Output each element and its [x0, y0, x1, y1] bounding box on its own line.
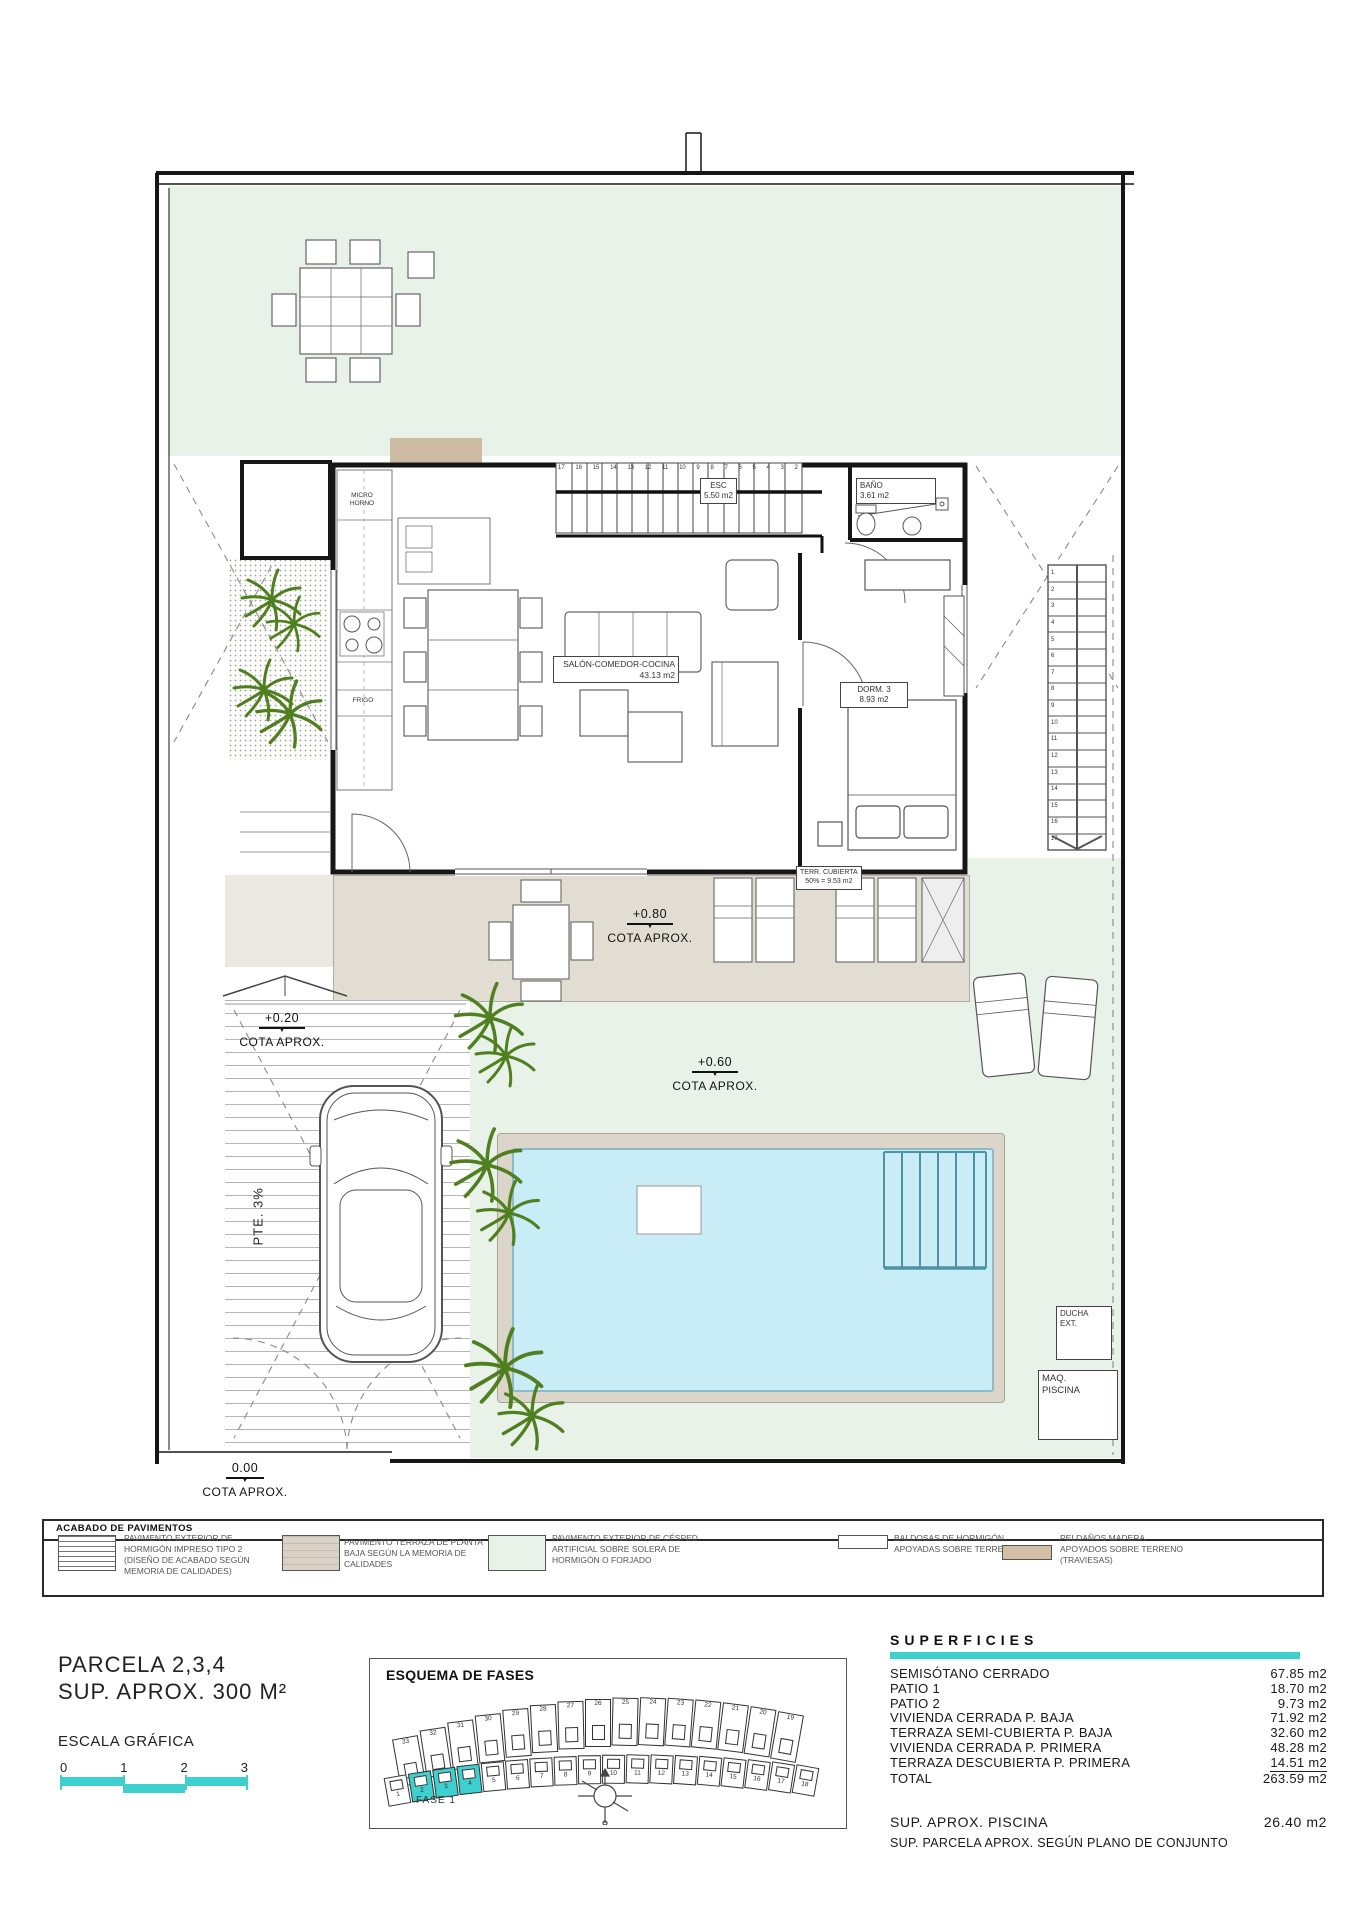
- superficies-row: VIVIENDA CERRADA P. PRIMERA48.28 m2: [890, 1741, 1327, 1756]
- row-value: 48.28 m2: [1270, 1741, 1327, 1756]
- micro-line2: HORNO: [336, 500, 388, 508]
- north-compass-icon: [570, 1767, 640, 1825]
- scale-tick-3: 3: [241, 1760, 248, 1775]
- tread-number-5: 5: [1051, 637, 1054, 643]
- cota-arrow-icon: ▼: [660, 1072, 770, 1077]
- parcela-title: PARCELA 2,3,4: [58, 1652, 226, 1678]
- legend-swatch-cesped: [488, 1535, 546, 1571]
- row-value: 67.85 m2: [1270, 1667, 1327, 1682]
- graphic-scale-bar: 0123: [60, 1760, 248, 1797]
- row-label: TERRAZA SEMI-CUBIERTA P. BAJA: [890, 1726, 1113, 1741]
- legend-swatch-terraza: [282, 1535, 340, 1571]
- maq-line1: MAQ.: [1042, 1373, 1114, 1385]
- cota-arrow-icon: ▼: [600, 924, 700, 929]
- esquema-title: ESQUEMA DE FASES: [386, 1667, 534, 1683]
- row-value: 71.92 m2: [1270, 1711, 1327, 1726]
- tread-number-9: 9: [1051, 703, 1054, 709]
- scale-end-tick: [246, 1775, 248, 1790]
- superficies-row: VIVIENDA CERRADA P. BAJA71.92 m2: [890, 1711, 1327, 1726]
- legend-text-peldanos: PELDAÑOS MADERA APOYADOS SOBRE TERRENO (…: [1060, 1533, 1190, 1566]
- tread-number-9: 9: [696, 465, 699, 471]
- plot-23: 23: [664, 1698, 694, 1748]
- maq-piscina-label: MAQ. PISCINA: [1038, 1370, 1118, 1440]
- superficies-block: SUPERFICIES SEMISÓTANO CERRADO67.85 m2 P…: [890, 1632, 1327, 1786]
- fase-label: FASE 1: [416, 1795, 456, 1806]
- tread-number-14: 14: [610, 465, 617, 471]
- car: [310, 1086, 452, 1362]
- superficies-row: TERRAZA SEMI-CUBIERTA P. BAJA32.60 m2: [890, 1726, 1327, 1741]
- row-label: VIVIENDA CERRADA P. PRIMERA: [890, 1741, 1102, 1756]
- legend-text-cesped: PAVIMENTO EXTERIOR DE CÉSPED ARTIFICIAL …: [552, 1533, 717, 1566]
- plot-18: 18: [792, 1764, 820, 1797]
- superficies-row-total: TOTAL263.59 m2: [890, 1772, 1327, 1787]
- tread-number-15: 15: [1051, 803, 1058, 809]
- scale-bar: [60, 1777, 248, 1797]
- piscina-label: SUP. APROX. PISCINA: [890, 1814, 1048, 1830]
- tread-number-11: 11: [662, 465, 668, 471]
- cota-jardin-label: COTA APROX.: [660, 1080, 770, 1093]
- dining-set: [404, 590, 542, 740]
- tread-number-2: 2: [795, 465, 798, 471]
- esc-line1: ESC: [704, 481, 733, 491]
- plot-27: 27: [557, 1701, 584, 1750]
- row-label: TOTAL: [890, 1772, 932, 1787]
- tread-number-5: 5: [752, 465, 755, 471]
- cota-jardin: +0.60 ▼ COTA APROX.: [660, 1056, 770, 1093]
- tread-number-7: 7: [1051, 670, 1054, 676]
- plot-29: 29: [502, 1708, 532, 1758]
- plot-6: 6: [505, 1759, 530, 1790]
- tread-number-16: 16: [575, 465, 582, 471]
- tread-number-15: 15: [593, 465, 600, 471]
- plan-linework: [0, 0, 1357, 1530]
- salon-line2: 43.13 m2: [557, 670, 675, 681]
- legend-swatch-baldosas: [838, 1535, 888, 1549]
- plot-15: 15: [720, 1757, 746, 1788]
- escala-title: ESCALA GRÁFICA: [58, 1733, 194, 1750]
- terrace-furniture: [489, 878, 964, 1001]
- scale-ticks: 0123: [60, 1760, 248, 1775]
- cota-arrow-icon: ▼: [232, 1028, 332, 1033]
- tread-number-4: 4: [1051, 620, 1054, 626]
- plot-24: 24: [638, 1697, 666, 1746]
- cota-acceso-label: COTA APROX.: [232, 1036, 332, 1049]
- cota-calle: 0.00 ▼ COTA APROX.: [190, 1462, 300, 1499]
- plot-16: 16: [744, 1759, 771, 1791]
- esquema-de-fases: ESQUEMA DE FASES 33323130292827262524232…: [369, 1658, 847, 1829]
- tread-number-4: 4: [767, 465, 770, 471]
- row-value: 9.73 m2: [1278, 1697, 1327, 1712]
- superficies-row: TERRAZA DESCUBIERTA P. PRIMERA14.51 m2: [890, 1756, 1327, 1772]
- tread-number-3: 3: [781, 465, 784, 471]
- scale-segment: [185, 1777, 248, 1786]
- parcela-surface: SUP. APROX. 300 M²: [58, 1679, 287, 1705]
- tread-number-10: 10: [1051, 720, 1058, 726]
- legend-text-hormigon: PAVIMENTO EXTERIOR DE HORMIGÓN IMPRESO T…: [124, 1533, 276, 1577]
- terraza-cubierta-label: TERR. CUBIERTA 50% = 9.53 m2: [796, 866, 862, 890]
- tread-number-17: 17: [558, 465, 565, 471]
- tread-number-12: 12: [1051, 753, 1058, 759]
- ducha-line1: DUCHA: [1060, 1309, 1108, 1319]
- garden-loungers: [973, 973, 1098, 1081]
- dorm3-label: DORM. 3 8.93 m2: [840, 682, 908, 708]
- maq-line2: PISCINA: [1042, 1385, 1114, 1397]
- tread-number-2: 2: [1051, 587, 1054, 593]
- pavement-legend: ACABADO DE PAVIMENTOS PAVIMENTO EXTERIOR…: [42, 1519, 1324, 1597]
- legend-swatch-hormigon: [58, 1535, 116, 1571]
- parcela-note: SUP. PARCELA APROX. SEGÚN PLANO DE CONJU…: [890, 1836, 1340, 1850]
- salon-label: SALÓN-COMEDOR-COCINA 43.13 m2: [553, 656, 679, 683]
- terr-line2: 50% = 9.53 m2: [800, 878, 858, 887]
- tread-number-14: 14: [1051, 786, 1058, 792]
- plot-13: 13: [673, 1755, 698, 1786]
- tread-number-6: 6: [1051, 653, 1054, 659]
- scale-tick-0: 0: [60, 1760, 67, 1775]
- tread-number-16: 16: [1051, 819, 1058, 825]
- tread-number-13: 13: [627, 465, 634, 471]
- interior-stair-numbers: 171615141312111098765432: [558, 465, 798, 471]
- plot-3: 3: [432, 1767, 459, 1799]
- row-label: SEMISÓTANO CERRADO: [890, 1667, 1050, 1682]
- legend-text-terraza: PAVIMENTO TERRAZA DE PLANTA BAJA SEGÚN L…: [344, 1537, 494, 1570]
- plot-1: 1: [384, 1774, 412, 1807]
- ducha-line2: EXT.: [1060, 1319, 1108, 1329]
- tread-number-10: 10: [679, 465, 686, 471]
- bano-line2: 3.61 m2: [860, 491, 932, 501]
- scale-segment: [60, 1777, 123, 1786]
- dorm3-line2: 8.93 m2: [844, 695, 904, 705]
- scale-end-tick: [185, 1775, 187, 1790]
- scale-end-tick: [123, 1775, 125, 1790]
- esquema-top-row: 333231302928272625242322212019: [396, 1699, 800, 1747]
- superficies-row: PATIO 118.70 m2: [890, 1682, 1327, 1697]
- superficies-row: PATIO 29.73 m2: [890, 1697, 1327, 1712]
- plot-28: 28: [530, 1704, 558, 1753]
- bano-line1: BAÑO: [860, 481, 932, 491]
- row-value: 14.51 m2: [1270, 1756, 1327, 1772]
- salon-line1: SALÓN-COMEDOR-COCINA: [557, 659, 675, 670]
- micro-line1: MICRO: [336, 492, 388, 500]
- pendiente-label: PTE. 3%: [251, 1166, 266, 1246]
- pergola-gable: [223, 976, 466, 1004]
- pool-skimmer: [637, 1186, 701, 1234]
- scale-end-tick: [60, 1775, 62, 1790]
- tread-number-3: 3: [1051, 603, 1054, 609]
- row-value: 32.60 m2: [1270, 1726, 1327, 1741]
- legend-swatch-peldanos: [1002, 1545, 1052, 1560]
- superficies-row: SEMISÓTANO CERRADO67.85 m2: [890, 1667, 1327, 1682]
- row-value: 18.70 m2: [1270, 1682, 1327, 1697]
- ducha-ext-label: DUCHA EXT.: [1056, 1306, 1112, 1360]
- dorm3-line1: DORM. 3: [844, 685, 904, 695]
- plot-7: 7: [529, 1757, 553, 1787]
- legend-text-baldosas: BALDOSAS DE HORMIGÓN APOYADAS SOBRE TERR…: [894, 1533, 1019, 1555]
- tread-number-7: 7: [724, 465, 727, 471]
- cota-acceso: +0.20 ▼ COTA APROX.: [232, 1012, 332, 1049]
- plot-5: 5: [481, 1761, 507, 1792]
- tread-number-13: 13: [1051, 770, 1058, 776]
- row-label: PATIO 1: [890, 1682, 940, 1697]
- garden-dining-set: [272, 240, 434, 382]
- pool-steps: [884, 1152, 986, 1268]
- tread-number-11: 11: [1051, 736, 1057, 742]
- scale-tick-2: 2: [181, 1760, 188, 1775]
- plot-12: 12: [649, 1754, 673, 1784]
- row-label: VIVIENDA CERRADA P. BAJA: [890, 1711, 1074, 1726]
- esc-label: ESC 5.50 m2: [700, 478, 737, 504]
- cota-calle-label: COTA APROX.: [190, 1486, 300, 1499]
- tread-number-8: 8: [1051, 686, 1054, 692]
- scale-tick-1: 1: [120, 1760, 127, 1775]
- row-value: 263.59 m2: [1263, 1772, 1327, 1787]
- tread-number-1: 1: [1051, 570, 1054, 576]
- cota-arrow-icon: ▼: [190, 1478, 300, 1483]
- plot-4: 4: [456, 1764, 482, 1795]
- plot-25: 25: [611, 1697, 638, 1746]
- tread-number-8: 8: [710, 465, 713, 471]
- row-label: PATIO 2: [890, 1697, 940, 1712]
- superficies-accent-bar: [890, 1652, 1300, 1659]
- tread-number-6: 6: [738, 465, 741, 471]
- bano-label: BAÑO 3.61 m2: [856, 478, 936, 504]
- esc-line2: 5.50 m2: [704, 491, 733, 501]
- row-label: TERRAZA DESCUBIERTA P. PRIMERA: [890, 1756, 1130, 1772]
- plot-14: 14: [697, 1756, 723, 1787]
- piscina-value: 26.40 m2: [1264, 1814, 1327, 1830]
- floor-plan-sheet: MICRO HORNO FRIGO ESC 5.50 m2 BAÑO 3.61 …: [0, 0, 1357, 1920]
- terr-line1: TERR. CUBIERTA: [800, 869, 858, 878]
- scale-segment: [123, 1784, 186, 1793]
- plot-22: 22: [691, 1699, 722, 1749]
- plot-26: 26: [585, 1699, 611, 1747]
- micro-horno-label: MICRO HORNO: [336, 492, 388, 508]
- tread-number-17: 17: [1051, 836, 1058, 842]
- exterior-stair-numbers: 1234567891011121314151617: [1051, 570, 1063, 842]
- plot-17: 17: [768, 1761, 795, 1793]
- piscina-row: SUP. APROX. PISCINA 26.40 m2: [890, 1814, 1327, 1830]
- tread-number-12: 12: [645, 465, 652, 471]
- cota-terraza: +0.80 ▼ COTA APROX.: [600, 908, 700, 945]
- frigo-label: FRIGO: [338, 697, 388, 705]
- cota-terraza-label: COTA APROX.: [600, 932, 700, 945]
- superficies-title: SUPERFICIES: [890, 1632, 1327, 1648]
